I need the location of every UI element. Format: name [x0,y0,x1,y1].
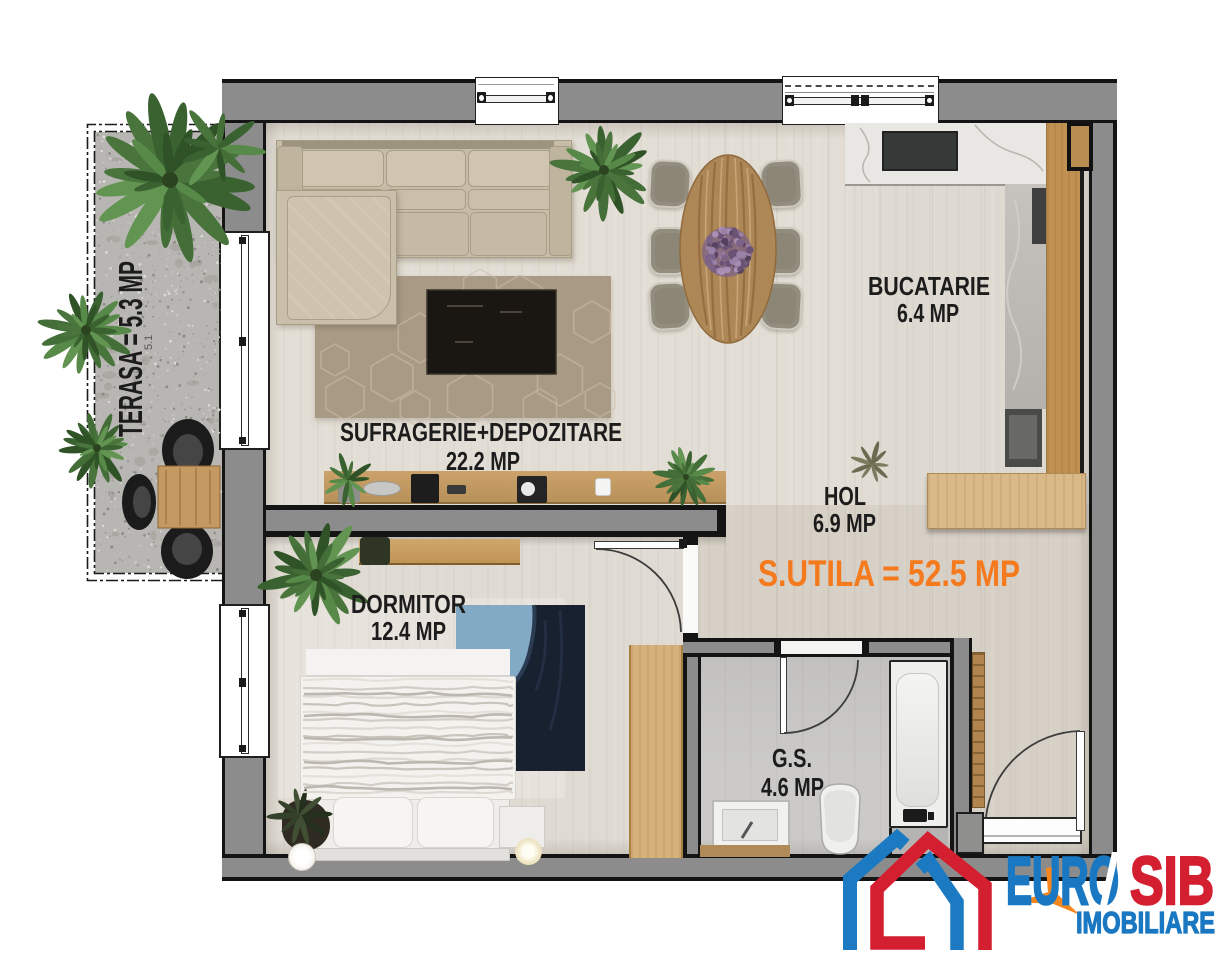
svg-text:12.4 MP: 12.4 MP [371,616,446,646]
svg-text:DORMITOR: DORMITOR [351,589,466,619]
svg-text:HOL: HOL [824,481,866,511]
svg-text:6.9 MP: 6.9 MP [813,508,876,538]
svg-text:S.UTILA = 52.5 MP: S.UTILA = 52.5 MP [758,553,1020,594]
svg-text:G.S.: G.S. [772,743,812,773]
svg-text:6.4 MP: 6.4 MP [897,298,959,328]
svg-text:SUFRAGERIE+DEPOZITARE: SUFRAGERIE+DEPOZITARE [340,417,622,447]
svg-text:5.1: 5.1 [143,335,155,350]
svg-text:4.6 MP: 4.6 MP [761,772,824,802]
svg-text:22.2 MP: 22.2 MP [446,446,520,476]
svg-text:IMOBILIARE: IMOBILIARE [1076,905,1215,940]
svg-text:BUCATARIE: BUCATARIE [868,271,990,301]
